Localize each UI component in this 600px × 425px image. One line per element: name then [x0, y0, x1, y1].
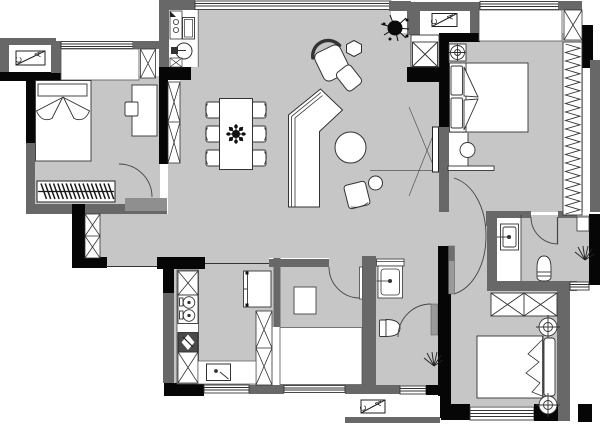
- svg-text:A: A: [374, 400, 383, 406]
- svg-text:C: C: [430, 19, 439, 25]
- svg-text:C: C: [359, 405, 368, 411]
- svg-text:A: A: [446, 14, 455, 20]
- svg-text:C: C: [14, 57, 24, 63]
- svg-text:A: A: [33, 51, 43, 57]
